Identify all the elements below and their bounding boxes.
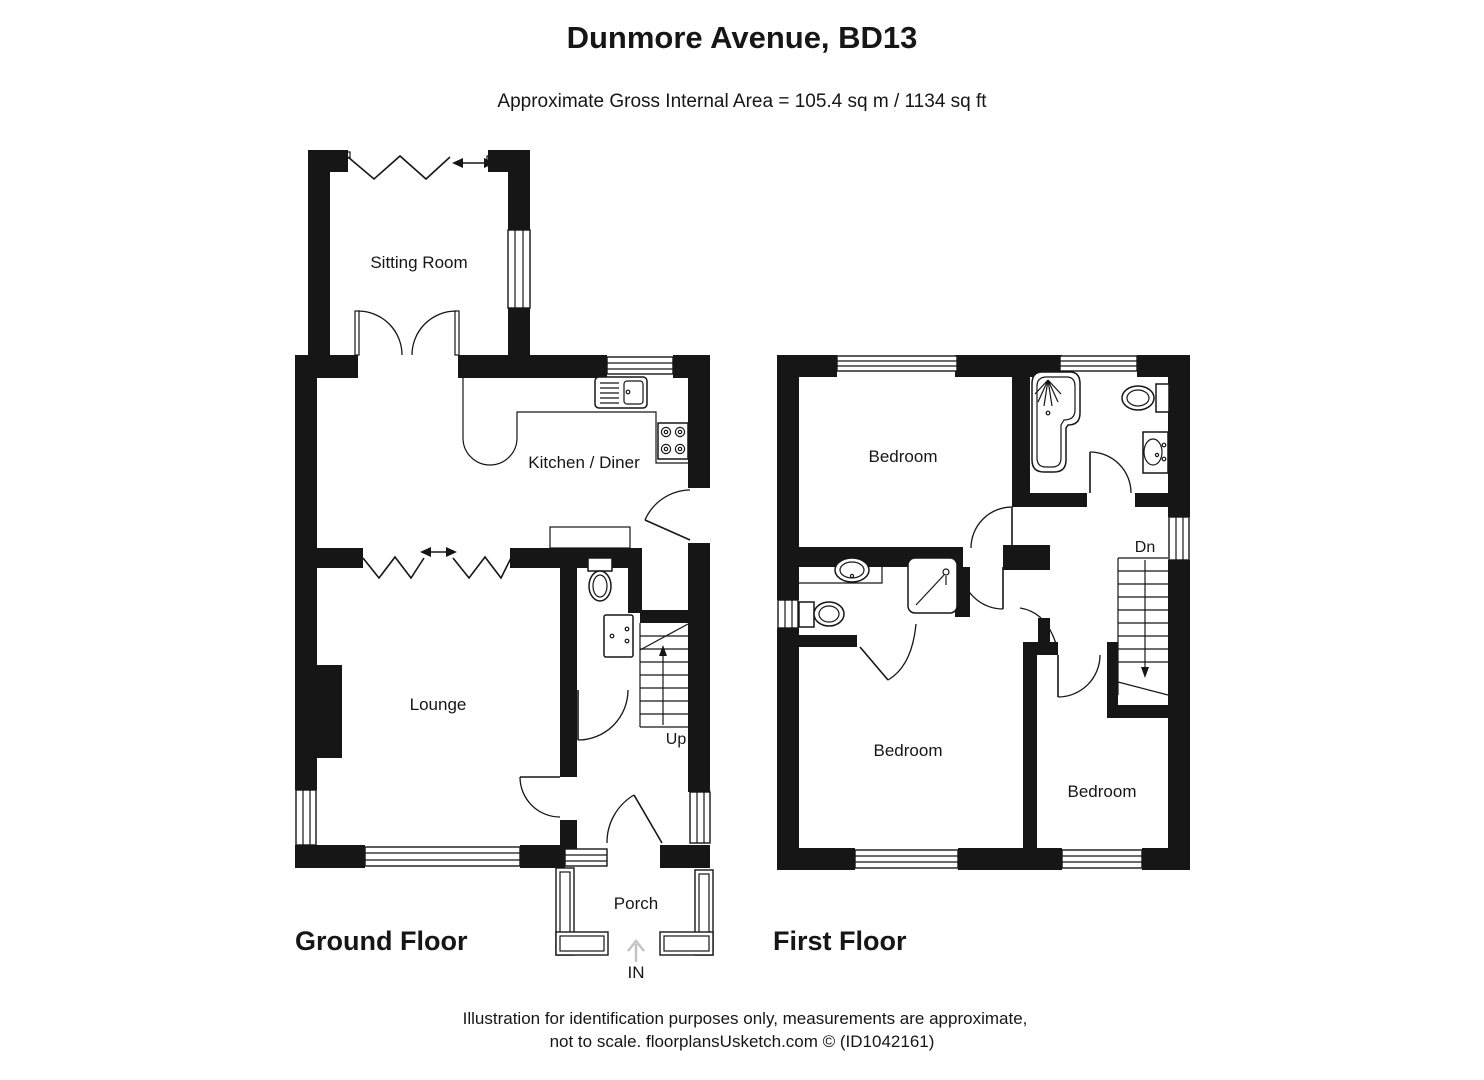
entrance-in-label: IN [628, 963, 645, 982]
stairs-up-label: Up [666, 731, 687, 748]
room-label-lounge: Lounge [410, 695, 467, 714]
ground-floor-walls [295, 150, 710, 868]
floorplan-page: Dunmore Avenue, BD13 Approximate Gross I… [0, 0, 1484, 1080]
first-floor-plan: Bedroom Bedroom Bedroom Dn First Floor [773, 355, 1190, 956]
bedroom3-door [1058, 655, 1100, 697]
room-label-kitchen-diner: Kitchen / Diner [528, 453, 640, 472]
kitchen-sink-icon [595, 377, 647, 408]
window [1169, 517, 1189, 560]
room-label-bedroom-3: Bedroom [1068, 782, 1137, 801]
bathroom-door [1090, 452, 1131, 493]
folding-door-icon [344, 152, 495, 179]
wc-door [578, 690, 628, 740]
window [1060, 356, 1137, 371]
hob-icon [658, 423, 688, 459]
area-subtitle: Approximate Gross Internal Area = 105.4 … [497, 91, 987, 112]
page-title: Dunmore Avenue, BD13 [567, 20, 918, 55]
window [607, 357, 673, 374]
toilet-icon [799, 602, 844, 627]
folding-door-icon [363, 547, 511, 578]
shower-room-door [860, 624, 916, 680]
front-door [607, 795, 662, 843]
window [837, 356, 957, 371]
room-label-porch: Porch [614, 894, 658, 913]
window [508, 230, 530, 308]
double-door [355, 311, 459, 355]
window [690, 792, 710, 843]
toilet-icon [588, 558, 612, 601]
staircase-down [1118, 558, 1168, 695]
bedroom1-door [971, 507, 1012, 548]
bath-icon [1032, 368, 1080, 472]
floorplan-canvas: Dunmore Avenue, BD13 Approximate Gross I… [0, 0, 1484, 1080]
sink-icon [604, 615, 633, 657]
window [296, 790, 316, 845]
first-floor-title: First Floor [773, 926, 907, 956]
footer-disclaimer-line1: Illustration for identification purposes… [463, 1009, 1028, 1028]
stairs-down-label: Dn [1135, 539, 1155, 556]
lounge-door [520, 777, 560, 817]
room-label-bedroom-1: Bedroom [869, 447, 938, 466]
in-arrow-icon [628, 941, 644, 962]
window [1062, 850, 1142, 868]
window [855, 850, 958, 868]
window [778, 600, 798, 628]
shower-icon [908, 558, 957, 613]
sink-icon [1143, 432, 1168, 473]
ground-floor-plan: Sitting Room Kitchen / Diner Lounge Porc… [295, 150, 713, 982]
toilet-icon [1122, 384, 1169, 412]
back-door [645, 490, 690, 540]
room-label-sitting-room: Sitting Room [370, 253, 467, 272]
ground-floor-title: Ground Floor [295, 926, 468, 956]
room-label-bedroom-2: Bedroom [874, 741, 943, 760]
window [565, 849, 607, 866]
window [365, 847, 520, 866]
footer-disclaimer-line2: not to scale. floorplansUsketch.com © (I… [550, 1032, 935, 1051]
staircase-up [640, 623, 688, 727]
